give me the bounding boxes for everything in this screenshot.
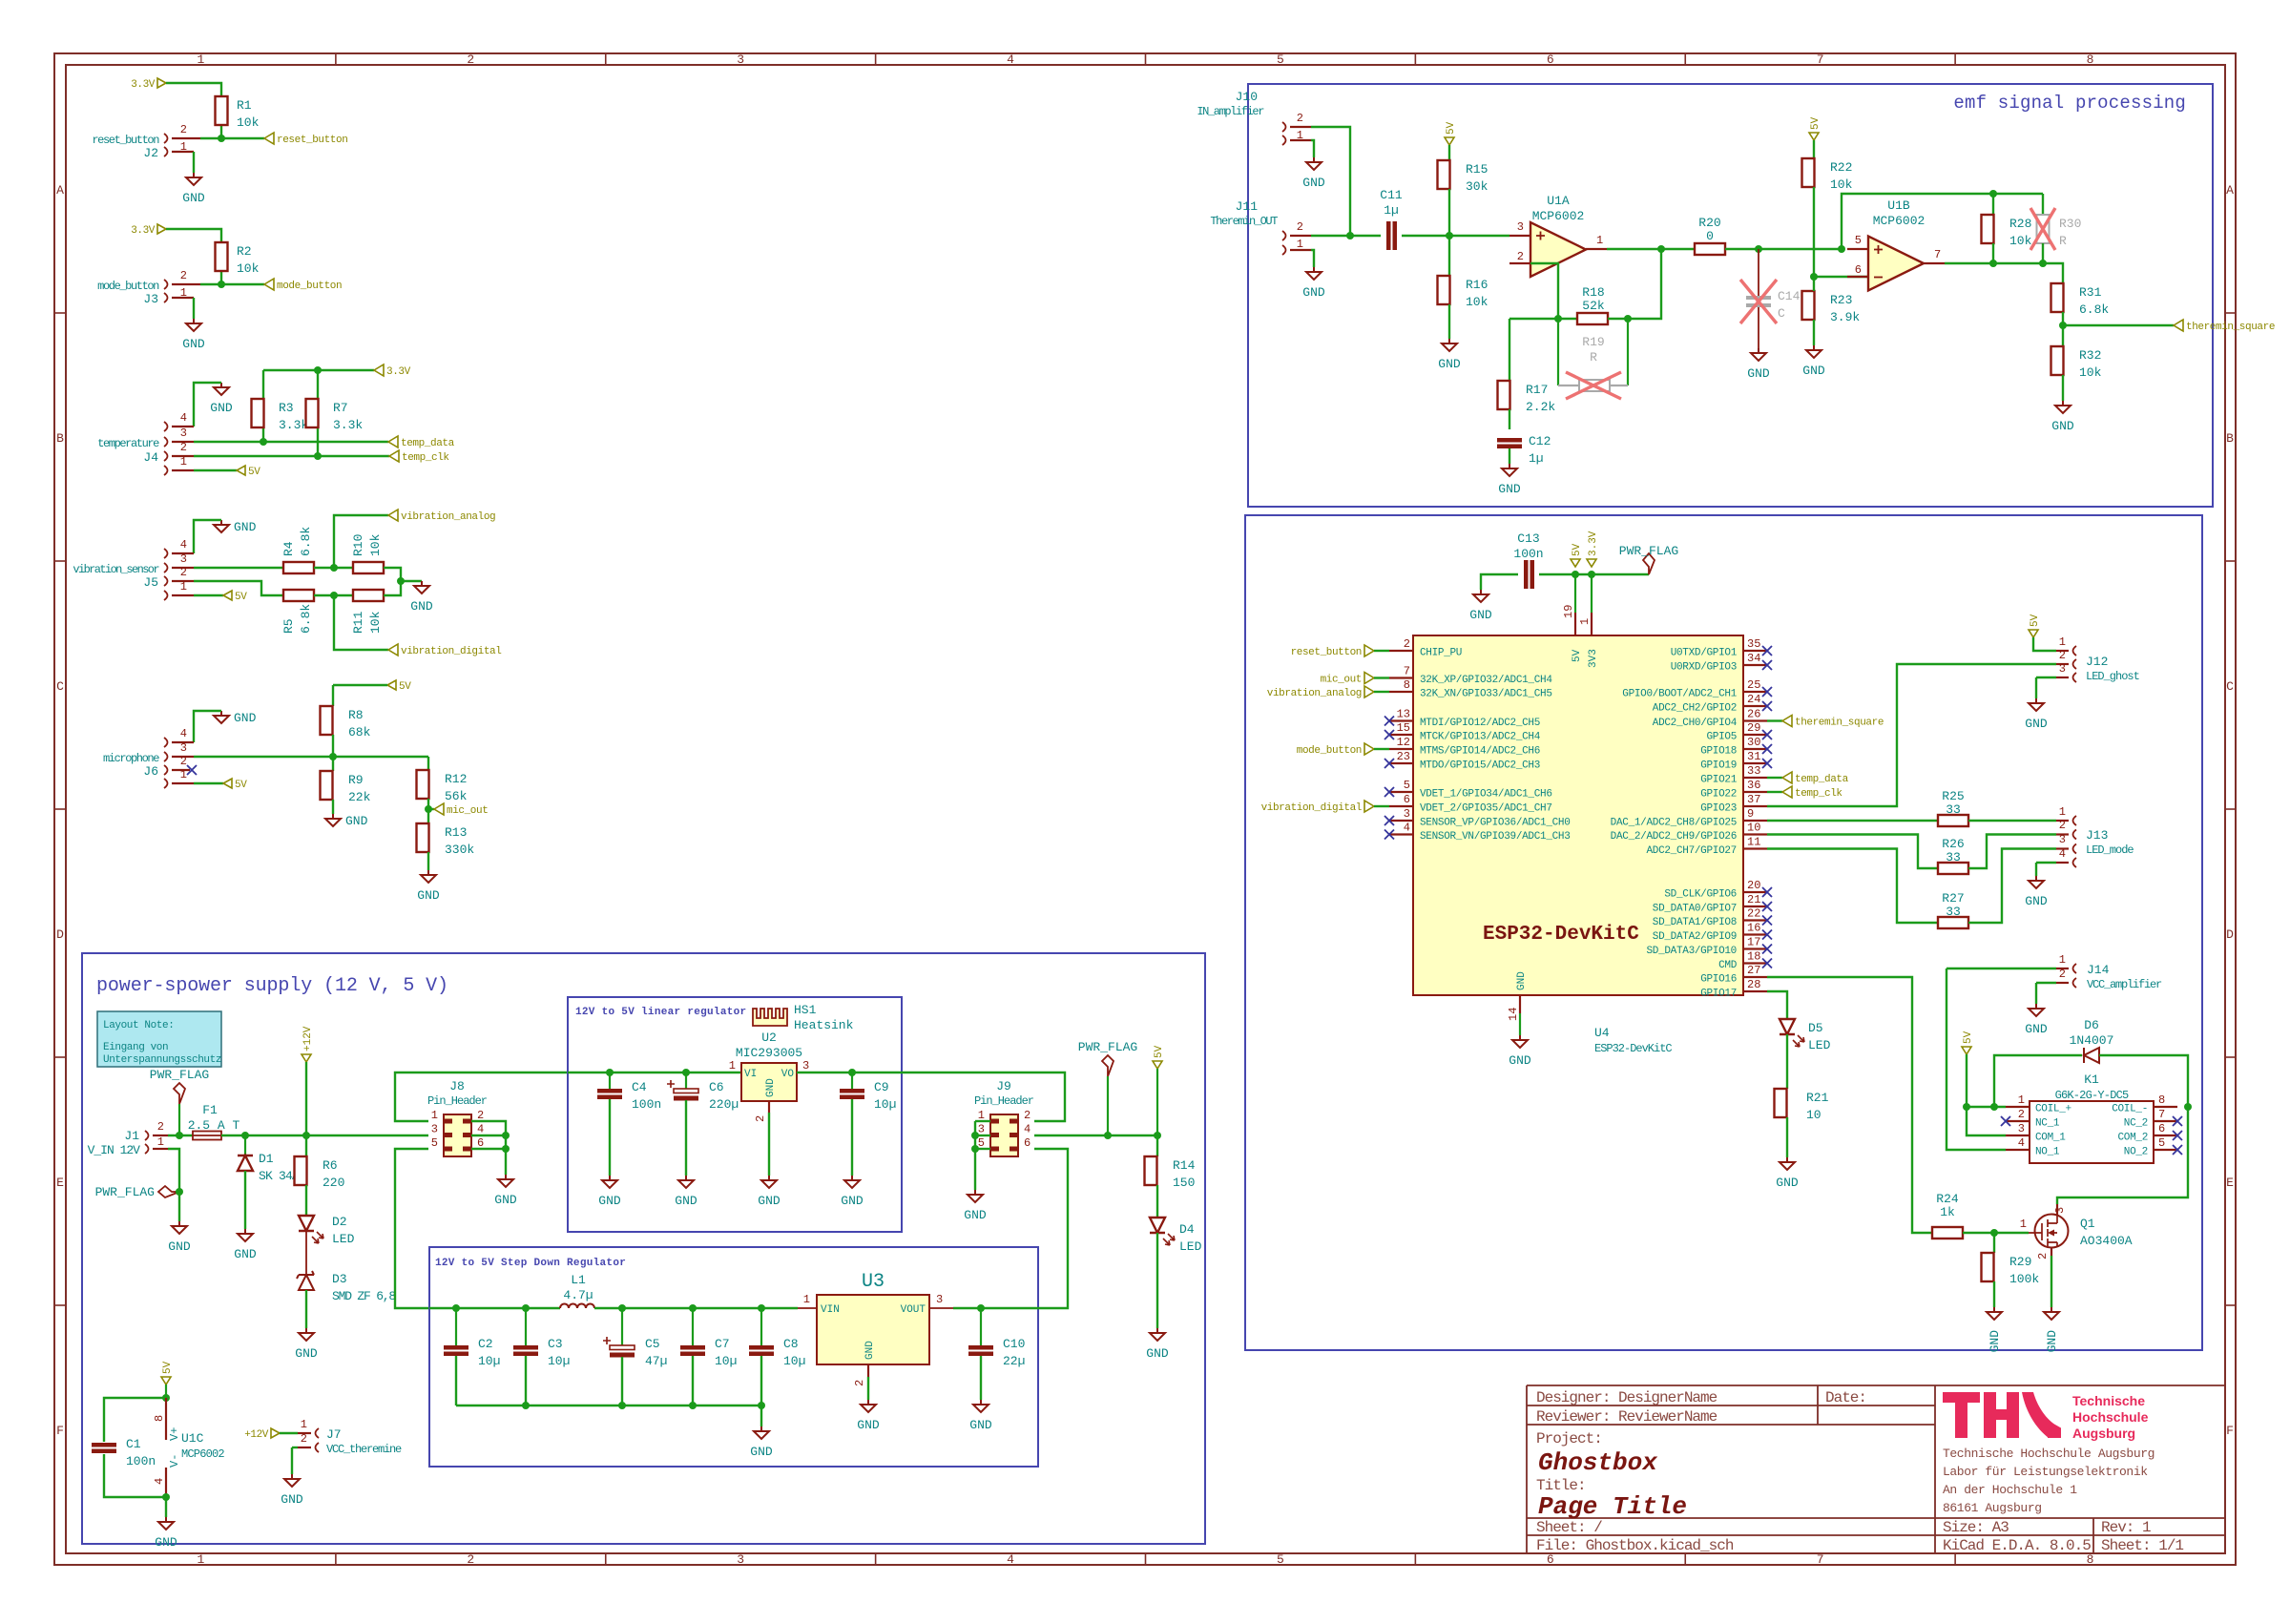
svg-text:CHIP_PU: CHIP_PU — [1420, 648, 1462, 659]
svg-text:5V: 5V — [399, 681, 411, 693]
svg-text:GND: GND — [750, 1445, 773, 1459]
svg-text:3: 3 — [2059, 833, 2066, 846]
svg-text:Q1: Q1 — [2080, 1217, 2095, 1231]
svg-text:L1: L1 — [571, 1273, 586, 1287]
svg-text:F: F — [56, 1424, 64, 1438]
svg-text:Reviewer: ReviewerName: Reviewer: ReviewerName — [1536, 1408, 1717, 1426]
svg-text:MTDI/GPIO12/ADC2_CH5: MTDI/GPIO12/ADC2_CH5 — [1420, 718, 1540, 729]
svg-text:LED_ghost: LED_ghost — [2086, 670, 2139, 683]
svg-text:5V: 5V — [1572, 649, 1583, 662]
svg-text:U1C: U1C — [181, 1431, 204, 1446]
svg-text:COIL_-: COIL_- — [2112, 1104, 2148, 1115]
svg-text:10µ: 10µ — [548, 1354, 570, 1368]
svg-text:GND: GND — [2025, 717, 2048, 731]
svg-text:C: C — [1778, 306, 1785, 321]
svg-text:25: 25 — [1747, 678, 1760, 692]
svg-text:10k: 10k — [1466, 295, 1488, 309]
svg-text:F1: F1 — [202, 1103, 218, 1117]
svg-text:5V: 5V — [1154, 1045, 1165, 1058]
svg-text:5V: 5V — [1446, 121, 1457, 135]
svg-text:5V: 5V — [248, 467, 260, 478]
svg-text:An der Hochschule 1: An der Hochschule 1 — [1943, 1483, 2077, 1497]
svg-text:ADC2_CH7/GPIO27: ADC2_CH7/GPIO27 — [1646, 845, 1737, 857]
svg-text:J4: J4 — [143, 450, 158, 465]
svg-text:U1A: U1A — [1547, 194, 1570, 208]
svg-text:J5: J5 — [143, 575, 158, 590]
svg-text:File: Ghostbox.kicad_sch: File: Ghostbox.kicad_sch — [1536, 1537, 1734, 1554]
svg-text:Augsburg: Augsburg — [2072, 1426, 2135, 1441]
svg-text:R21: R21 — [1806, 1091, 1829, 1105]
svg-text:temp_data: temp_data — [401, 438, 455, 449]
svg-text:33: 33 — [1946, 905, 1961, 919]
svg-text:R7: R7 — [333, 401, 348, 415]
svg-text:J12: J12 — [2086, 655, 2108, 669]
svg-text:VIN: VIN — [821, 1304, 840, 1316]
svg-text:temp_clk: temp_clk — [402, 452, 449, 464]
svg-text:ADC2_CH2/GPIO2: ADC2_CH2/GPIO2 — [1653, 703, 1737, 715]
svg-text:7: 7 — [1817, 1552, 1824, 1567]
svg-text:33: 33 — [1747, 764, 1760, 778]
svg-text:C6: C6 — [709, 1080, 724, 1094]
svg-text:ADC2_CH0/GPIO4: ADC2_CH0/GPIO4 — [1653, 718, 1738, 729]
svg-text:SENSOR_VP/GPIO36/ADC1_CH0: SENSOR_VP/GPIO36/ADC1_CH0 — [1420, 818, 1571, 829]
svg-text:1µ: 1µ — [1384, 203, 1399, 218]
svg-text:7: 7 — [2158, 1108, 2165, 1121]
svg-text:GND: GND — [210, 401, 233, 415]
svg-text:NO_2: NO_2 — [2124, 1147, 2148, 1158]
svg-text:10µ: 10µ — [715, 1354, 737, 1368]
svg-text:SENSOR_VN/GPIO39/ADC1_CH3: SENSOR_VN/GPIO39/ADC1_CH3 — [1420, 831, 1571, 843]
svg-text:28: 28 — [1747, 978, 1760, 991]
svg-text:30: 30 — [1747, 736, 1760, 749]
svg-text:MTCK/GPIO13/ADC2_CH4: MTCK/GPIO13/ADC2_CH4 — [1420, 732, 1541, 743]
svg-text:2: 2 — [467, 1552, 474, 1567]
svg-text:GND: GND — [234, 1247, 257, 1261]
svg-text:C14: C14 — [1778, 289, 1801, 303]
svg-text:26: 26 — [1747, 708, 1760, 721]
svg-text:emf signal processing: emf signal processing — [1953, 93, 2186, 114]
svg-text:1k: 1k — [1940, 1205, 1955, 1219]
svg-text:MIC293005: MIC293005 — [736, 1046, 802, 1060]
svg-text:5: 5 — [2158, 1136, 2165, 1150]
svg-text:5V: 5V — [235, 780, 247, 791]
svg-text:Eingang von: Eingang von — [103, 1042, 168, 1053]
svg-text:GND: GND — [758, 1194, 781, 1208]
svg-text:D: D — [2226, 927, 2234, 942]
svg-text:GND: GND — [1988, 1330, 2002, 1353]
svg-text:21: 21 — [1747, 893, 1760, 906]
svg-text:R1: R1 — [237, 98, 252, 113]
svg-text:AO3400A: AO3400A — [2080, 1234, 2133, 1248]
svg-text:23: 23 — [1397, 750, 1410, 763]
svg-text:18: 18 — [1747, 950, 1760, 964]
svg-text:LED: LED — [1808, 1038, 1831, 1052]
svg-text:4: 4 — [1024, 1123, 1030, 1136]
svg-text:1: 1 — [180, 768, 187, 781]
svg-text:6.8k: 6.8k — [299, 527, 313, 556]
svg-text:6: 6 — [1855, 263, 1862, 277]
svg-text:J10: J10 — [1236, 90, 1258, 104]
svg-text:10k: 10k — [237, 115, 260, 130]
svg-text:16: 16 — [1747, 922, 1760, 935]
svg-text:5V: 5V — [2030, 614, 2041, 627]
svg-text:ESP32-DevKitC: ESP32-DevKitC — [1594, 1042, 1672, 1055]
svg-text:Technische Hochschule Augsburg: Technische Hochschule Augsburg — [1943, 1447, 2155, 1461]
svg-text:DAC_2/ADC2_CH9/GPIO26: DAC_2/ADC2_CH9/GPIO26 — [1611, 831, 1737, 843]
svg-text:6: 6 — [1404, 793, 1410, 806]
svg-text:2: 2 — [467, 52, 474, 67]
svg-text:GND: GND — [964, 1208, 987, 1222]
svg-text:8: 8 — [2087, 1552, 2094, 1567]
svg-text:R15: R15 — [1466, 162, 1488, 177]
svg-text:mode_button: mode_button — [1297, 745, 1362, 757]
svg-text:GND: GND — [841, 1194, 864, 1208]
svg-text:R20: R20 — [1698, 216, 1720, 230]
svg-text:1: 1 — [2059, 635, 2066, 649]
svg-text:COM_1: COM_1 — [2035, 1133, 2066, 1144]
svg-text:C8: C8 — [783, 1337, 799, 1351]
svg-text:VI: VI — [744, 1069, 757, 1080]
svg-text:SD_DATA0/GPIO7: SD_DATA0/GPIO7 — [1653, 904, 1737, 915]
svg-text:IN_amplifier: IN_amplifier — [1197, 105, 1264, 118]
svg-text:vibration_digital: vibration_digital — [401, 646, 501, 657]
svg-text:GND: GND — [1776, 1176, 1799, 1190]
svg-text:17: 17 — [1747, 936, 1760, 949]
svg-text:CMD: CMD — [1718, 960, 1738, 971]
svg-text:5V: 5V — [1963, 1031, 1974, 1044]
svg-text:mode_button: mode_button — [277, 281, 342, 292]
svg-text:2: 2 — [2059, 649, 2066, 662]
svg-text:2.2k: 2.2k — [1526, 400, 1555, 414]
svg-text:10k: 10k — [237, 261, 260, 276]
svg-text:11: 11 — [1747, 836, 1760, 849]
svg-text:SD_DATA3/GPIO10: SD_DATA3/GPIO10 — [1646, 946, 1737, 957]
svg-text:2: 2 — [301, 1432, 307, 1446]
svg-text:2: 2 — [180, 269, 187, 282]
svg-text:10µ: 10µ — [874, 1097, 896, 1112]
svg-text:GND: GND — [234, 520, 257, 534]
svg-text:68k: 68k — [348, 725, 371, 739]
svg-text:7: 7 — [1404, 665, 1410, 678]
svg-text:6: 6 — [1547, 1552, 1554, 1567]
svg-text:56k: 56k — [445, 789, 468, 803]
svg-text:4: 4 — [1007, 1552, 1014, 1567]
svg-text:power-spower supply (12 V, 5 V: power-spower supply (12 V, 5 V) — [96, 975, 448, 997]
svg-text:150: 150 — [1173, 1176, 1195, 1190]
svg-text:R25: R25 — [1942, 789, 1964, 803]
svg-text:Page Title: Page Title — [1538, 1492, 1687, 1521]
svg-text:10k: 10k — [2009, 234, 2032, 248]
svg-text:6: 6 — [1547, 52, 1554, 67]
svg-text:U0RXD/GPIO3: U0RXD/GPIO3 — [1671, 662, 1737, 674]
svg-text:1: 1 — [2059, 805, 2066, 819]
svg-text:4: 4 — [153, 1478, 166, 1485]
svg-text:VCC_theremine: VCC_theremine — [326, 1443, 402, 1456]
svg-text:U0TXD/GPIO1: U0TXD/GPIO1 — [1671, 648, 1738, 659]
svg-text:6.8k: 6.8k — [2079, 302, 2109, 317]
svg-text:GPIO21: GPIO21 — [1700, 775, 1738, 786]
svg-text:3.3V: 3.3V — [386, 366, 411, 378]
svg-text:GPIO5: GPIO5 — [1706, 732, 1737, 743]
svg-text:5: 5 — [1855, 234, 1862, 247]
svg-text:C: C — [2226, 679, 2234, 694]
svg-text:GPIO16: GPIO16 — [1700, 974, 1737, 986]
svg-text:GND: GND — [598, 1194, 621, 1208]
svg-text:reset_button: reset_button — [92, 134, 159, 147]
svg-text:GPIO22: GPIO22 — [1700, 789, 1737, 801]
svg-text:3: 3 — [180, 552, 187, 566]
svg-text:F: F — [2226, 1424, 2234, 1438]
svg-text:DAC_1/ADC2_CH8/GPIO25: DAC_1/ADC2_CH8/GPIO25 — [1611, 818, 1737, 829]
svg-text:J3: J3 — [143, 292, 158, 306]
svg-text:C7: C7 — [715, 1337, 730, 1351]
svg-text:reset_button: reset_button — [277, 135, 347, 146]
svg-text:3.3k: 3.3k — [333, 418, 363, 432]
svg-text:A: A — [2226, 183, 2234, 198]
svg-text:J11: J11 — [1236, 199, 1259, 214]
svg-text:R2: R2 — [237, 244, 252, 259]
svg-text:86161 Augsburg: 86161 Augsburg — [1943, 1501, 2042, 1515]
svg-text:GPIO17: GPIO17 — [1700, 989, 1737, 1000]
svg-text:R4: R4 — [281, 541, 296, 556]
svg-text:1: 1 — [180, 580, 187, 593]
svg-text:22k: 22k — [348, 790, 371, 804]
svg-text:3.3k: 3.3k — [279, 418, 308, 432]
svg-text:1: 1 — [157, 1135, 164, 1149]
svg-text:MTDO/GPIO15/ADC2_CH3: MTDO/GPIO15/ADC2_CH3 — [1420, 760, 1540, 772]
svg-text:R28: R28 — [2009, 217, 2031, 231]
svg-text:Designer: DesignerName: Designer: DesignerName — [1536, 1389, 1717, 1406]
svg-text:GND: GND — [1438, 357, 1461, 371]
svg-text:GND: GND — [2051, 419, 2074, 433]
svg-text:30k: 30k — [1466, 179, 1488, 194]
svg-text:GND: GND — [345, 814, 368, 828]
svg-text:R3: R3 — [279, 401, 294, 415]
svg-text:GND: GND — [765, 1078, 777, 1097]
svg-text:VDET_2/GPIO35/ADC1_CH7: VDET_2/GPIO35/ADC1_CH7 — [1420, 803, 1552, 815]
svg-text:U1B: U1B — [1887, 198, 1910, 213]
svg-text:C11: C11 — [1380, 188, 1403, 202]
svg-text:temp_clk: temp_clk — [1795, 788, 1842, 800]
svg-text:10k: 10k — [2079, 365, 2102, 380]
svg-text:R17: R17 — [1526, 383, 1548, 397]
svg-text:SD_CLK/GPIO6: SD_CLK/GPIO6 — [1664, 889, 1737, 901]
svg-text:PWR_FLAG: PWR_FLAG — [1619, 544, 1678, 558]
svg-text:PWR_FLAG: PWR_FLAG — [150, 1068, 209, 1082]
svg-text:15: 15 — [1397, 721, 1410, 735]
svg-text:reset_button: reset_button — [1291, 647, 1362, 658]
svg-text:4: 4 — [477, 1123, 484, 1136]
svg-text:GND: GND — [410, 599, 433, 614]
svg-text:R: R — [1590, 350, 1597, 364]
svg-text:J8: J8 — [449, 1079, 465, 1093]
svg-text:R24: R24 — [1936, 1192, 1959, 1206]
svg-text:R23: R23 — [1830, 293, 1852, 307]
svg-text:3.9k: 3.9k — [1830, 310, 1860, 324]
svg-text:E: E — [2226, 1176, 2234, 1190]
svg-text:SD_DATA2/GPIO9: SD_DATA2/GPIO9 — [1653, 931, 1737, 943]
svg-text:VCC_amplifier: VCC_amplifier — [2087, 978, 2162, 991]
svg-text:10k: 10k — [368, 533, 383, 556]
svg-text:3: 3 — [180, 427, 187, 440]
svg-text:GPIO19: GPIO19 — [1700, 760, 1737, 772]
svg-text:3.3V: 3.3V — [1588, 531, 1599, 556]
svg-text:Heatsink: Heatsink — [794, 1018, 854, 1032]
svg-text:5: 5 — [1277, 1552, 1284, 1567]
svg-text:3: 3 — [936, 1293, 943, 1306]
svg-text:GND: GND — [168, 1239, 191, 1254]
svg-text:Ghostbox: Ghostbox — [1538, 1448, 1658, 1477]
svg-text:31: 31 — [1747, 750, 1760, 763]
svg-text:GND: GND — [1146, 1346, 1169, 1361]
svg-text:1µ: 1µ — [1529, 451, 1544, 466]
svg-text:1: 1 — [431, 1109, 438, 1122]
svg-text:R22: R22 — [1830, 160, 1852, 175]
svg-text:7: 7 — [1817, 52, 1824, 67]
svg-text:microphone: microphone — [103, 752, 159, 765]
svg-text:R6: R6 — [323, 1158, 338, 1173]
svg-text:vibration_analog: vibration_analog — [401, 511, 495, 523]
svg-text:V-: V- — [168, 1454, 181, 1468]
svg-text:VDET_1/GPIO34/ADC1_CH6: VDET_1/GPIO34/ADC1_CH6 — [1420, 789, 1552, 801]
svg-text:GND: GND — [2045, 1330, 2059, 1353]
svg-text:3V3: 3V3 — [1588, 649, 1599, 668]
svg-text:GND: GND — [1302, 285, 1325, 300]
svg-text:1: 1 — [198, 52, 205, 67]
svg-text:1: 1 — [180, 455, 187, 468]
svg-text:3: 3 — [978, 1123, 985, 1136]
svg-text:MCP6002: MCP6002 — [181, 1447, 224, 1461]
svg-text:MCP6002: MCP6002 — [1532, 209, 1585, 223]
svg-text:2: 2 — [180, 123, 187, 136]
svg-text:27: 27 — [1747, 964, 1760, 977]
svg-text:GND: GND — [182, 337, 205, 351]
svg-text:36: 36 — [1747, 779, 1760, 792]
svg-text:100n: 100n — [632, 1097, 661, 1112]
svg-text:KiCad E.D.A. 8.0.5: KiCad E.D.A. 8.0.5 — [1943, 1537, 2091, 1554]
svg-text:13: 13 — [1397, 708, 1410, 721]
svg-text:mic_out: mic_out — [1321, 675, 1362, 686]
svg-text:12V to 5V linear regulator: 12V to 5V linear regulator — [575, 1007, 746, 1018]
svg-text:NC_1: NC_1 — [2035, 1118, 2060, 1130]
svg-text:V+: V+ — [168, 1427, 181, 1441]
svg-text:GND: GND — [1516, 971, 1528, 990]
svg-text:1: 1 — [803, 1293, 810, 1306]
svg-text:3: 3 — [802, 1059, 809, 1072]
svg-text:8: 8 — [2087, 52, 2094, 67]
svg-text:C: C — [56, 679, 64, 694]
svg-text:R27: R27 — [1942, 891, 1964, 906]
svg-text:U3: U3 — [862, 1271, 885, 1293]
svg-text:J2: J2 — [143, 146, 158, 160]
svg-text:1: 1 — [729, 1059, 736, 1072]
svg-text:33: 33 — [1946, 802, 1961, 817]
svg-text:2: 2 — [853, 1380, 866, 1386]
svg-text:2: 2 — [157, 1120, 164, 1134]
svg-text:Sheet: /: Sheet: / — [1536, 1519, 1602, 1536]
svg-text:mic_out: mic_out — [447, 805, 488, 817]
svg-text:NC_2: NC_2 — [2124, 1118, 2148, 1130]
svg-text:C5: C5 — [645, 1337, 660, 1351]
svg-text:R: R — [2059, 234, 2067, 248]
svg-text:34: 34 — [1747, 652, 1760, 665]
svg-text:2: 2 — [180, 441, 187, 454]
svg-text:HS1: HS1 — [794, 1003, 817, 1017]
svg-text:10k: 10k — [1830, 177, 1853, 192]
svg-text:9: 9 — [1747, 807, 1754, 821]
svg-text:SD_DATA1/GPIO8: SD_DATA1/GPIO8 — [1653, 917, 1737, 928]
svg-text:14: 14 — [1507, 1008, 1520, 1021]
svg-text:2: 2 — [1517, 250, 1524, 263]
svg-text:ESP32-DevKitC: ESP32-DevKitC — [1483, 924, 1639, 946]
svg-text:19: 19 — [1562, 605, 1575, 618]
svg-text:4: 4 — [2059, 847, 2066, 861]
svg-text:1: 1 — [301, 1418, 307, 1431]
svg-text:52k: 52k — [1582, 299, 1605, 313]
svg-text:47µ: 47µ — [645, 1354, 667, 1368]
svg-text:100n: 100n — [1513, 547, 1543, 561]
svg-text:1: 1 — [1297, 238, 1303, 251]
svg-text:3: 3 — [1404, 807, 1410, 821]
svg-text:3: 3 — [2053, 1207, 2067, 1214]
svg-text:vibration_digital: vibration_digital — [1261, 802, 1362, 814]
svg-text:D3: D3 — [332, 1272, 347, 1286]
svg-text:U2: U2 — [761, 1031, 777, 1045]
svg-text:R13: R13 — [445, 825, 467, 840]
svg-text:4: 4 — [180, 411, 187, 425]
svg-text:Rev: 1: Rev: 1 — [2101, 1519, 2151, 1536]
svg-text:R5: R5 — [281, 618, 296, 634]
svg-text:Layout Note:: Layout Note: — [103, 1020, 174, 1031]
svg-text:100n: 100n — [126, 1454, 156, 1468]
svg-text:GPIO18: GPIO18 — [1700, 746, 1737, 758]
svg-text:4: 4 — [2018, 1136, 2025, 1150]
svg-text:R26: R26 — [1942, 837, 1964, 851]
svg-text:GND: GND — [1747, 366, 1770, 381]
svg-text:GND: GND — [969, 1418, 992, 1432]
svg-text:2: 2 — [754, 1115, 767, 1122]
svg-text:GND: GND — [1509, 1053, 1531, 1068]
svg-text:LED: LED — [1179, 1239, 1202, 1254]
svg-text:GPIO0/BOOT/ADC2_CH1: GPIO0/BOOT/ADC2_CH1 — [1622, 689, 1737, 700]
svg-text:22µ: 22µ — [1003, 1354, 1025, 1368]
svg-text:temperature: temperature — [97, 437, 159, 450]
svg-text:35: 35 — [1747, 637, 1760, 651]
svg-text:C10: C10 — [1003, 1337, 1025, 1351]
svg-text:3: 3 — [180, 741, 187, 755]
svg-text:100k: 100k — [2009, 1272, 2039, 1286]
svg-text:2: 2 — [2059, 968, 2066, 981]
svg-text:GND: GND — [234, 711, 257, 725]
svg-text:GND: GND — [1469, 608, 1492, 622]
svg-text:5V: 5V — [1572, 543, 1583, 556]
svg-text:220µ: 220µ — [709, 1097, 739, 1112]
svg-text:10µ: 10µ — [478, 1354, 500, 1368]
svg-text:7: 7 — [1934, 248, 1941, 261]
svg-text:3: 3 — [2018, 1122, 2025, 1135]
svg-text:B: B — [2226, 431, 2234, 446]
svg-text:GND: GND — [2025, 1022, 2048, 1036]
svg-text:1N4007: 1N4007 — [2070, 1033, 2114, 1048]
svg-text:2: 2 — [1024, 1109, 1030, 1122]
svg-text:theremin_square: theremin_square — [2186, 322, 2275, 333]
svg-text:2: 2 — [2018, 1108, 2025, 1121]
svg-text:GND: GND — [295, 1346, 318, 1361]
svg-text:SMD ZF 6,8: SMD ZF 6,8 — [332, 1289, 395, 1303]
svg-text:2: 2 — [180, 566, 187, 579]
svg-text:2: 2 — [1404, 637, 1410, 651]
svg-text:D: D — [56, 927, 64, 942]
